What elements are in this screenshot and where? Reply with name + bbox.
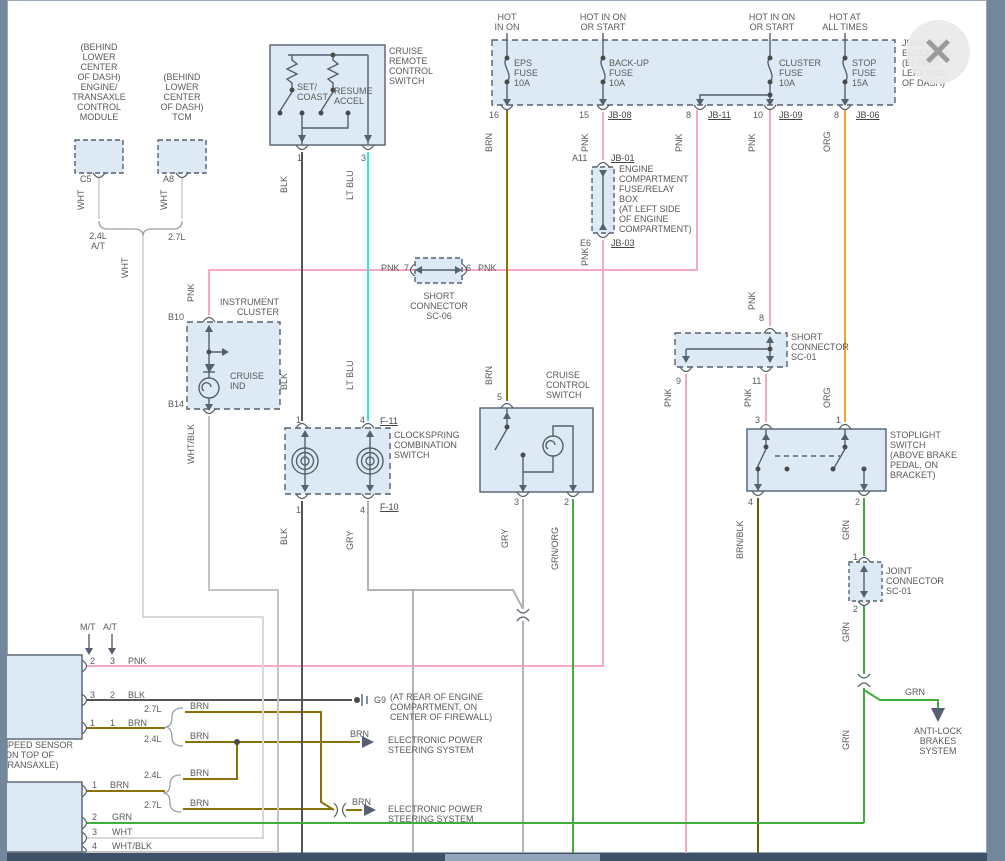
wire-label-whtblk: WHT/BLK xyxy=(112,841,152,851)
pin-3: 3 xyxy=(110,656,115,666)
dot xyxy=(601,80,606,85)
g9-ground-symbol xyxy=(362,694,367,706)
pin-2: 2 xyxy=(853,604,858,614)
at-label: A/T xyxy=(103,622,117,632)
wire-label-brn: BRN xyxy=(190,768,209,778)
dot xyxy=(234,739,240,745)
close-icon: ✕ xyxy=(922,30,954,75)
set-coast-label: SET/ COAST xyxy=(297,82,328,102)
wire-label-brn: BRN xyxy=(190,701,209,711)
pin-1: 1 xyxy=(297,153,302,163)
g9-location-label: (AT REAR OF ENGINE COMPARTMENT, ON CENTE… xyxy=(390,692,492,722)
tcm-label: (BEHIND LOWER CENTER OF DASH) TCM xyxy=(141,72,223,122)
short-connector-sc01-title: SHORT CONNECTOR SC-01 xyxy=(791,332,849,362)
pin-1: 1 xyxy=(90,718,95,728)
eps-fuse-label: EPS FUSE 10A xyxy=(514,58,538,88)
engine-24l-at-label: 2.4L A/T xyxy=(84,231,112,251)
pin-15: 15 xyxy=(579,110,589,120)
wire-label-pnk: PNK xyxy=(747,133,757,152)
dot xyxy=(843,445,848,450)
pin-4: 4 xyxy=(360,415,365,425)
dot xyxy=(601,56,606,61)
junction-block-box xyxy=(492,40,895,105)
wire-label-blk: BLK xyxy=(279,176,289,193)
wire-label-brn: BRN xyxy=(484,366,494,385)
wire-label-pnk: PNK xyxy=(128,656,147,666)
wire-label-org: ORG xyxy=(822,131,832,152)
pin-8: 8 xyxy=(834,110,839,120)
brace-upper-brn xyxy=(165,708,183,746)
pin-a11: A11 xyxy=(572,153,587,163)
lower-connector-box xyxy=(4,782,82,852)
hot-start-label: HOT IN ON OR START xyxy=(577,12,629,32)
wire-label-pnk: PNK xyxy=(186,283,196,302)
pin-1: 1 xyxy=(853,552,858,562)
pin-2: 2 xyxy=(90,656,95,666)
wire-label-pnk: PNK xyxy=(478,263,497,273)
abs-system-label: ANTI-LOCK BRAKES SYSTEM xyxy=(908,726,968,756)
engine-27l-label: 2.7L xyxy=(168,232,186,242)
pin-3: 3 xyxy=(514,497,519,507)
tcm-box xyxy=(158,140,206,173)
pin-a8: A8 xyxy=(163,174,174,184)
wire-grn-abs-branch xyxy=(864,690,938,708)
pin-5: 5 xyxy=(497,392,502,402)
fuse-relay-box-title: ENGINE COMPARTMENT FUSE/RELAY BOX (AT LE… xyxy=(619,164,692,234)
speed-sensor-title: SPEED SENSOR (ON TOP OF TRANSAXLE) xyxy=(2,740,73,770)
pin-3: 3 xyxy=(92,827,97,837)
wire-label-grn: GRN xyxy=(905,687,925,697)
link-jb03[interactable]: JB-03 xyxy=(611,238,635,248)
backup-fuse-label: BACK-UP FUSE 10A xyxy=(609,58,649,88)
dot xyxy=(862,467,867,472)
cruise-control-switch-box xyxy=(480,408,593,492)
wire-label-grnorg: GRN/ORG xyxy=(550,527,560,570)
pin-6: 6 xyxy=(466,263,471,273)
pin-2: 2 xyxy=(110,690,115,700)
stoplight-switch-title: STOPLIGHT SWITCH (ABOVE BRAKE PEDAL, ON … xyxy=(890,430,957,480)
wire-label-brn: BRN xyxy=(350,729,369,739)
g9-label: G9 xyxy=(374,695,386,705)
wiring-diagram xyxy=(0,0,1005,861)
wire-label-ltblu: LT BLU xyxy=(345,170,355,200)
link-f11[interactable]: F-11 xyxy=(380,416,398,426)
pin-1: 1 xyxy=(296,505,301,515)
wire-label-pnk: PNK xyxy=(663,388,673,407)
pin-2: 2 xyxy=(564,497,569,507)
dot xyxy=(756,467,761,472)
dot xyxy=(843,56,848,61)
hot-start-label: HOT IN ON OR START xyxy=(746,12,798,32)
wire-label-grn: GRN xyxy=(841,520,851,540)
diagram-viewer: (BEHIND LOWER CENTER OF DASH) ENGINE/ TR… xyxy=(0,0,1005,861)
dot xyxy=(505,56,510,61)
pin-10: 10 xyxy=(753,110,763,120)
pin-3: 3 xyxy=(755,415,760,425)
dot xyxy=(768,56,773,61)
wire-brn-27l-upper xyxy=(185,712,334,810)
wire-label-blk: BLK xyxy=(128,690,145,700)
pin-1: 1 xyxy=(110,718,115,728)
pin-3: 3 xyxy=(90,690,95,700)
pin-3: 3 xyxy=(361,153,366,163)
dot xyxy=(505,80,510,85)
dot xyxy=(505,425,510,430)
hot-in-on-label: HOT IN ON xyxy=(487,12,527,32)
dot xyxy=(331,53,336,58)
wire-gry-clockspring-f10 xyxy=(368,501,523,609)
wire-label-wht: WHT xyxy=(120,258,130,279)
wire-label-blk: BLK xyxy=(279,373,289,390)
joint-connector-title: JOINT CONNECTOR SC-01 xyxy=(886,566,944,596)
link-jb11[interactable]: JB-11 xyxy=(708,110,731,120)
pin-1: 1 xyxy=(92,780,97,790)
link-jb08[interactable]: JB-08 xyxy=(608,110,632,120)
dot xyxy=(207,350,212,355)
link-jb06[interactable]: JB-06 xyxy=(856,110,880,120)
wire-label-pnk: PNK xyxy=(743,388,753,407)
arrow xyxy=(85,648,93,655)
wire-label-gry: GRY xyxy=(500,529,510,548)
engine-27l-label: 2.7L xyxy=(144,704,162,714)
engine-24l-label: 2.4L xyxy=(144,770,162,780)
dot xyxy=(768,347,773,352)
dot xyxy=(768,93,773,98)
arrow xyxy=(108,648,116,655)
eps-system-label-1: ELECTRONIC POWER STEERING SYSTEM xyxy=(388,735,483,755)
engine-27l-label: 2.7L xyxy=(144,800,162,810)
pin-b10: B10 xyxy=(168,312,184,322)
pin-16: 16 xyxy=(489,110,499,120)
short-connector-sc06-title: SHORT CONNECTOR SC-06 xyxy=(408,291,470,321)
wires-grn xyxy=(86,498,938,861)
dot xyxy=(354,697,360,703)
link-jb01[interactable]: JB-01 xyxy=(611,153,635,163)
wire-label-brn: BRN xyxy=(128,718,147,728)
pin-11: 11 xyxy=(752,376,761,386)
dot xyxy=(319,111,324,116)
wire-label-brn: BRN xyxy=(190,731,209,741)
pin-9: 9 xyxy=(676,376,681,386)
dot xyxy=(843,80,848,85)
link-jb09[interactable]: JB-09 xyxy=(779,110,803,120)
wire-label-brn: BRN xyxy=(484,133,494,152)
wires-wht xyxy=(86,178,263,838)
pin-2: 2 xyxy=(92,812,97,822)
wire-label-wht: WHT xyxy=(76,190,86,211)
wire-label-grn: GRN xyxy=(841,730,851,750)
dot xyxy=(764,445,769,450)
dot xyxy=(521,453,526,458)
wire-label-whtblk: WHT/BLK xyxy=(186,424,196,464)
wire-brn-27l-lower xyxy=(183,809,362,810)
wire-label-org: ORG xyxy=(822,387,832,408)
wire-label-gry: GRY xyxy=(345,531,355,550)
pin-8: 8 xyxy=(686,110,691,120)
brace-lower-brn xyxy=(163,775,181,812)
left-frame-strip xyxy=(0,0,7,861)
dot xyxy=(300,111,305,116)
clockspring-title: CLOCKSPRING COMBINATION SWITCH xyxy=(394,430,460,460)
close-button[interactable]: ✕ xyxy=(906,20,970,84)
pin-1: 1 xyxy=(296,415,301,425)
wire-label-brn: BRN xyxy=(352,797,371,807)
cruise-ind-label: CRUISE IND xyxy=(230,371,264,391)
wire-label-pnk: PNK xyxy=(381,263,400,273)
wire-label-pnk: PNK xyxy=(580,133,590,152)
pin-1: 1 xyxy=(836,415,841,425)
pin-4: 4 xyxy=(360,505,365,515)
resume-accel-label: RESUME ACCEL xyxy=(334,86,373,106)
right-frame-strip xyxy=(987,0,1005,861)
pin-2: 2 xyxy=(855,497,860,507)
dot xyxy=(831,467,836,472)
link-f10[interactable]: F-10 xyxy=(380,502,399,512)
wire-label-wht: WHT xyxy=(112,827,133,837)
wire-label-pnk: PNK xyxy=(580,247,590,266)
pin-8: 8 xyxy=(759,313,764,323)
wire-label-grn: GRN xyxy=(112,812,132,822)
wire-label-brn: BRN xyxy=(190,798,209,808)
pin-4: 4 xyxy=(748,497,753,507)
dot xyxy=(346,111,351,116)
pin-7: 7 xyxy=(404,263,409,273)
cruise-remote-title: CRUISE REMOTE CONTROL SWITCH xyxy=(389,46,433,86)
arrow-abs xyxy=(931,708,945,722)
wire-label-brn: BRN xyxy=(110,780,129,790)
cruise-control-switch-title: CRUISE CONTROL SWITCH xyxy=(546,370,590,400)
module1-label: (BEHIND LOWER CENTER OF DASH) ENGINE/ TR… xyxy=(58,42,140,122)
dot xyxy=(768,80,773,85)
bottom-scrollbar-thumb[interactable] xyxy=(445,854,600,861)
instrument-cluster-title: INSTRUMENT CLUSTER xyxy=(217,297,279,317)
mt-label: M/T xyxy=(80,622,96,632)
pin-4: 4 xyxy=(92,841,97,851)
dot xyxy=(278,111,283,116)
speed-sensor-box xyxy=(4,655,82,739)
engine-24l-label: 2.4L xyxy=(144,734,162,744)
eps-system-label-2: ELECTRONIC POWER STEERING SYSTEM xyxy=(388,804,483,824)
wire-label-blk: BLK xyxy=(279,528,289,545)
instrument-cluster-box xyxy=(187,322,280,409)
wire-label-brnblk: BRN/BLK xyxy=(735,520,745,559)
dot xyxy=(290,88,295,93)
hot-all-times-label: HOT AT ALL TIMES xyxy=(820,12,870,32)
junction-dots xyxy=(207,53,867,746)
pin-b14: B14 xyxy=(168,399,184,409)
stop-fuse-label: STOP FUSE 15A xyxy=(852,58,876,88)
wire-label-wht: WHT xyxy=(159,190,169,211)
wire-label-pnk: PNK xyxy=(747,291,757,310)
engine-control-module-box xyxy=(75,140,123,173)
wire-label-pnk: PNK xyxy=(674,133,684,152)
wire-label-grn: GRN xyxy=(841,622,851,642)
wire-label-ltblu: LT BLU xyxy=(345,360,355,390)
dot xyxy=(785,467,790,472)
cluster-fuse-label: CLUSTER FUSE 10A xyxy=(779,58,821,88)
pin-c5: C5 xyxy=(80,174,92,184)
